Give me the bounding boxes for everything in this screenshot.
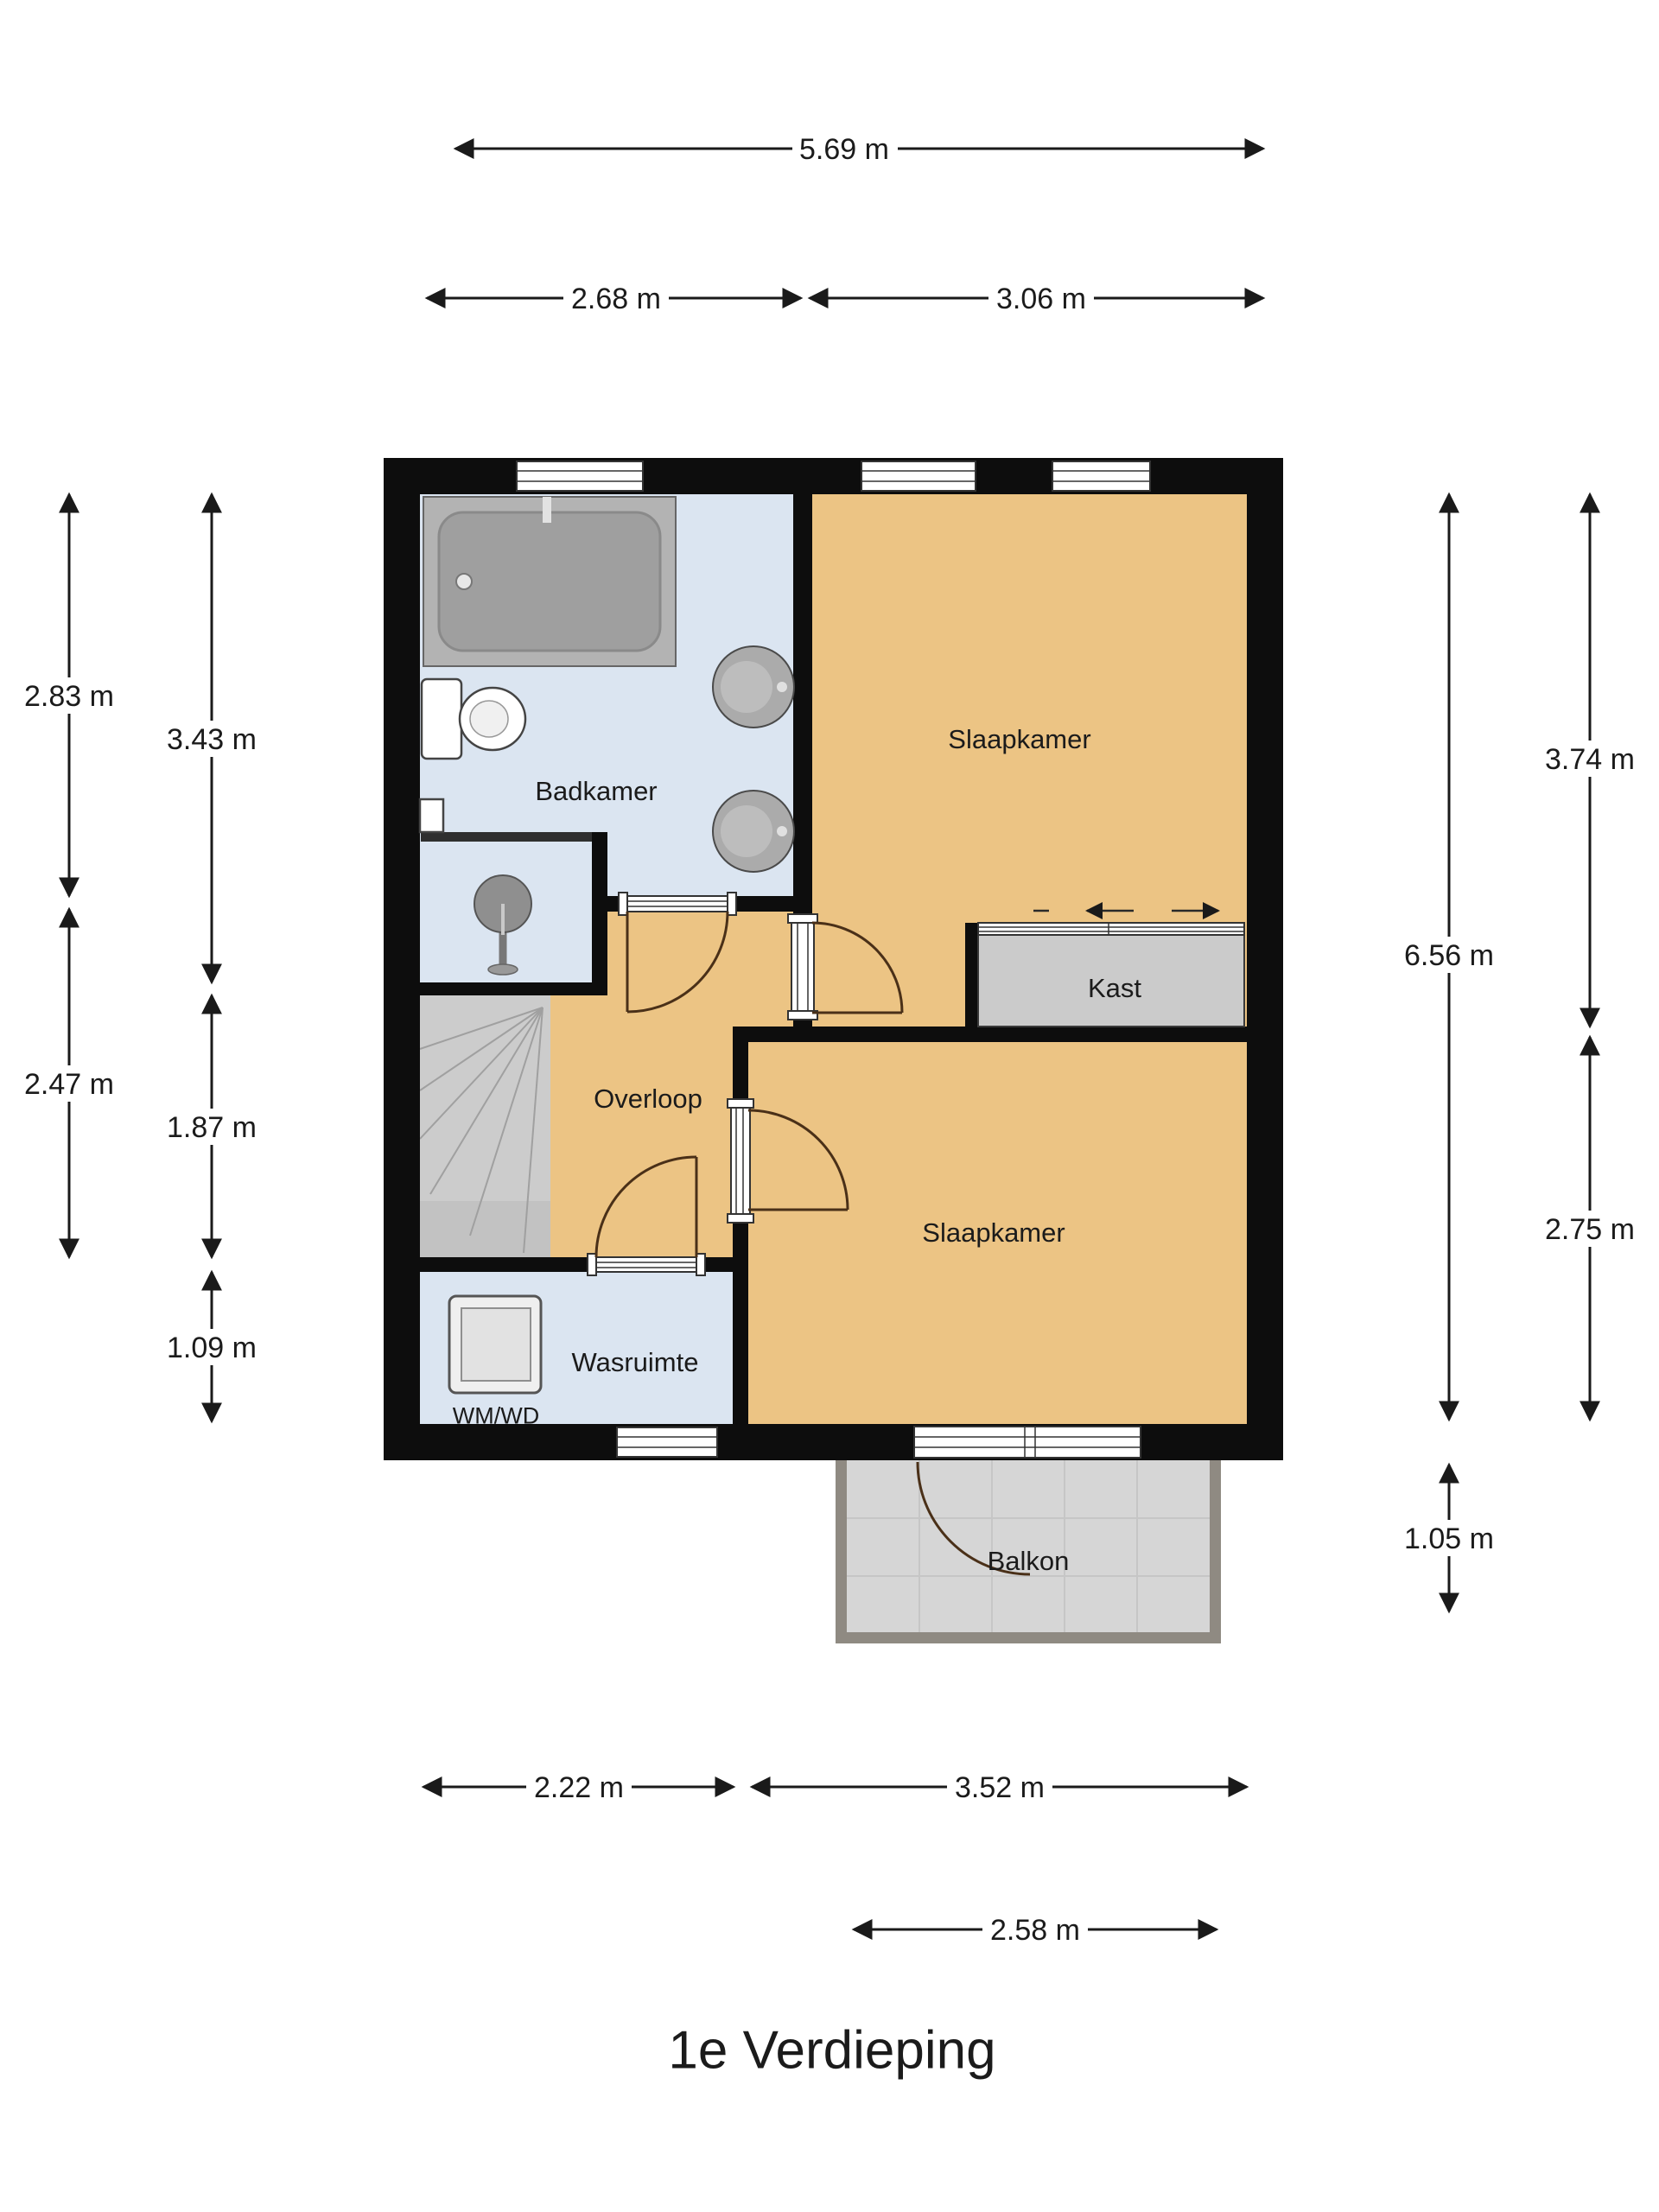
svg-text:2.47 m: 2.47 m [24,1068,114,1101]
svg-text:6.56 m: 6.56 m [1404,939,1494,972]
page-title: 1e Verdieping [668,2021,995,2081]
wall-shower-bottom [420,982,607,995]
dim-top-569: 5.69 m [455,130,1263,167]
stairs [420,995,550,1257]
dim-right-105: 1.05 m [1396,1465,1502,1611]
dim-right-374: 3.74 m [1537,494,1643,1027]
wall-wasruimte-top-left [420,1257,596,1272]
balcony-wall-right [1210,1460,1221,1643]
dim-right-275: 2.75 m [1537,1037,1643,1420]
label-slaapkamer2: Slaapkamer [922,1217,1065,1248]
floorplan-page: Badkamer Slaapkamer Kast Overloop Slaapk… [0,0,1659,2212]
svg-text:2.68 m: 2.68 m [571,283,661,315]
dim-left-187: 1.87 m [159,995,264,1257]
dim-bottom-222: 2.22 m [423,1769,734,1805]
kast-sliding-track [978,923,1244,935]
svg-text:1.87 m: 1.87 m [167,1111,257,1144]
dim-left-343: 3.43 m [159,494,264,982]
label-overloop: Overloop [594,1084,702,1114]
window-badkamer [517,461,643,491]
label-balkon: Balkon [988,1546,1070,1576]
floorplan-canvas: Badkamer Slaapkamer Kast Overloop Slaapk… [0,0,1659,2212]
dim-top-306: 3.06 m [810,280,1263,316]
svg-text:2.58 m: 2.58 m [990,1914,1080,1947]
label-slaapkamer1: Slaapkamer [948,724,1090,754]
kast [978,911,1244,1027]
sink-top [713,646,794,728]
svg-text:3.43 m: 3.43 m [167,723,257,756]
dim-left-109: 1.09 m [159,1272,264,1421]
wall-shower-right [592,832,607,995]
washing-machine [449,1296,541,1393]
svg-text:2.75 m: 2.75 m [1545,1213,1635,1246]
dim-bottom-352: 3.52 m [752,1769,1247,1805]
wall-shower-glass-screen [421,832,592,842]
wall-exterior-left [384,458,420,1460]
window-wasruimte [617,1427,717,1457]
svg-text:2.22 m: 2.22 m [534,1771,624,1804]
wall-divider-v1-upper [793,494,812,923]
svg-text:5.69 m: 5.69 m [799,133,889,166]
window-slaapkamer1-right [1052,461,1150,491]
wall-nib-white [420,799,443,832]
label-wm-wd: WM/WD [453,1402,539,1428]
sink-bottom [713,791,794,872]
wall-exterior-right [1247,458,1283,1460]
svg-text:3.06 m: 3.06 m [996,283,1086,315]
label-badkamer: Badkamer [535,776,657,806]
balcony-wall-left [836,1460,847,1643]
svg-text:1.05 m: 1.05 m [1404,1522,1494,1555]
svg-text:1.09 m: 1.09 m [167,1332,257,1364]
label-kast: Kast [1088,973,1141,1003]
window-slaapkamer1-left [861,461,976,491]
label-wasruimte: Wasruimte [572,1347,699,1377]
svg-text:3.74 m: 3.74 m [1545,743,1635,776]
svg-text:2.83 m: 2.83 m [24,680,114,713]
wall-kast-stub [965,923,978,1027]
wall-exterior-bottom [384,1424,1283,1460]
balcony-wall-bottom [836,1632,1221,1643]
stairs-landing [420,1201,550,1257]
dim-right-656: 6.56 m [1396,494,1502,1420]
room-overloop-floor-lower [550,995,733,1257]
wall-slaapkamer1-bottom [733,1027,1249,1042]
wall-divider-v3-lower [733,1214,748,1424]
dim-bottom-258: 2.58 m [854,1911,1217,1948]
dim-left-247: 2.47 m [16,909,122,1257]
dim-left-283: 2.83 m [16,494,122,896]
svg-text:3.52 m: 3.52 m [955,1771,1045,1804]
wall-badkamer-bottom-right [728,896,812,912]
bathtub [423,497,676,666]
dim-top-268: 2.68 m [427,280,801,316]
bathtub-overflow [543,497,551,523]
